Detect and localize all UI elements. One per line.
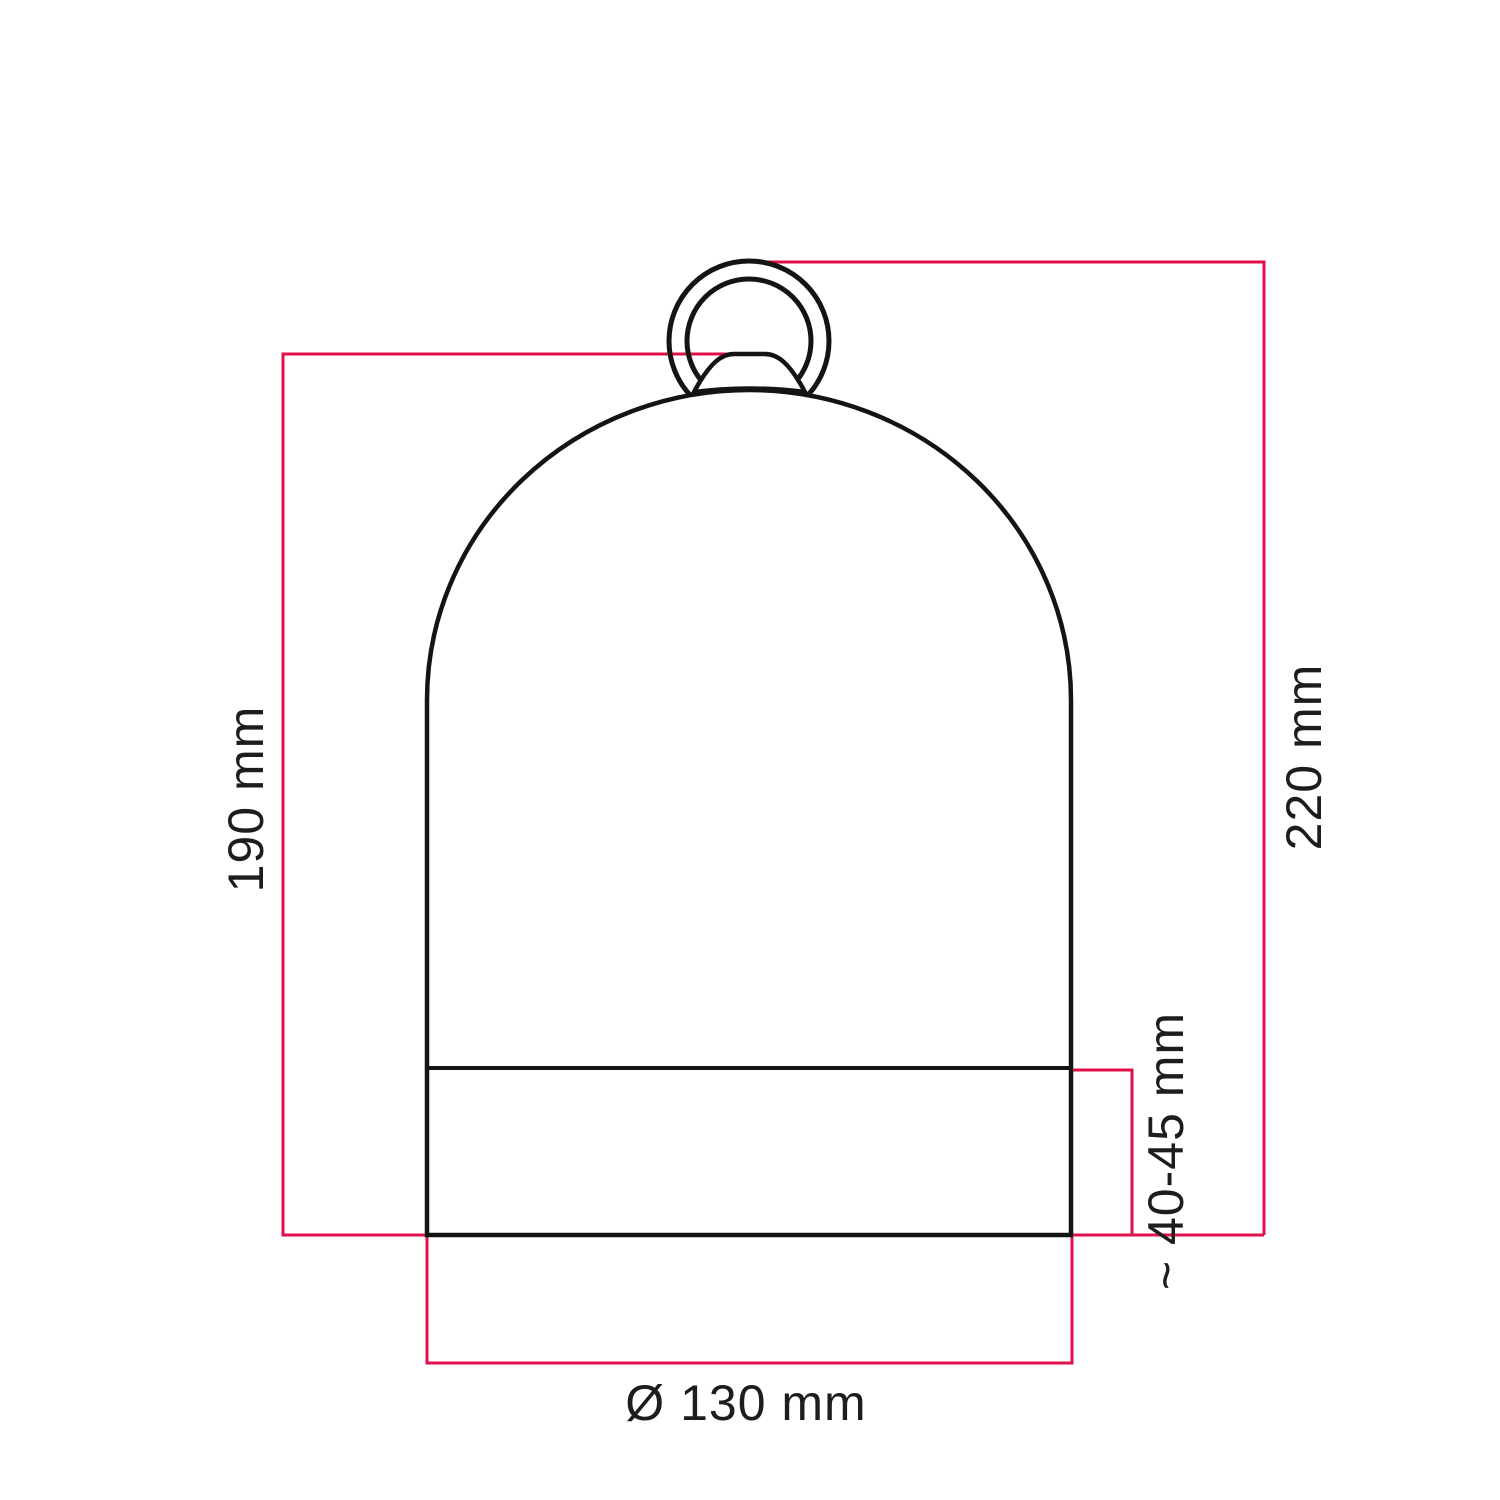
dimension-line-diameter [427, 1237, 1072, 1363]
bell-shade-outline [427, 390, 1071, 1235]
dimension-line-base-height [1071, 1070, 1132, 1235]
dimension-label-total-height: 220 mm [1276, 664, 1332, 851]
top-knob [694, 354, 805, 392]
dimension-label-base-height: ~ 40-45 mm [1138, 1012, 1194, 1290]
dimension-drawing-canvas: 190 mm 220 mm ~ 40-45 mm Ø 130 mm [0, 0, 1500, 1500]
bell-lampshade-dimension-diagram: 190 mm 220 mm ~ 40-45 mm Ø 130 mm [0, 0, 1500, 1500]
dimension-label-body-height: 190 mm [218, 706, 274, 893]
dimension-label-diameter: Ø 130 mm [625, 1375, 866, 1431]
